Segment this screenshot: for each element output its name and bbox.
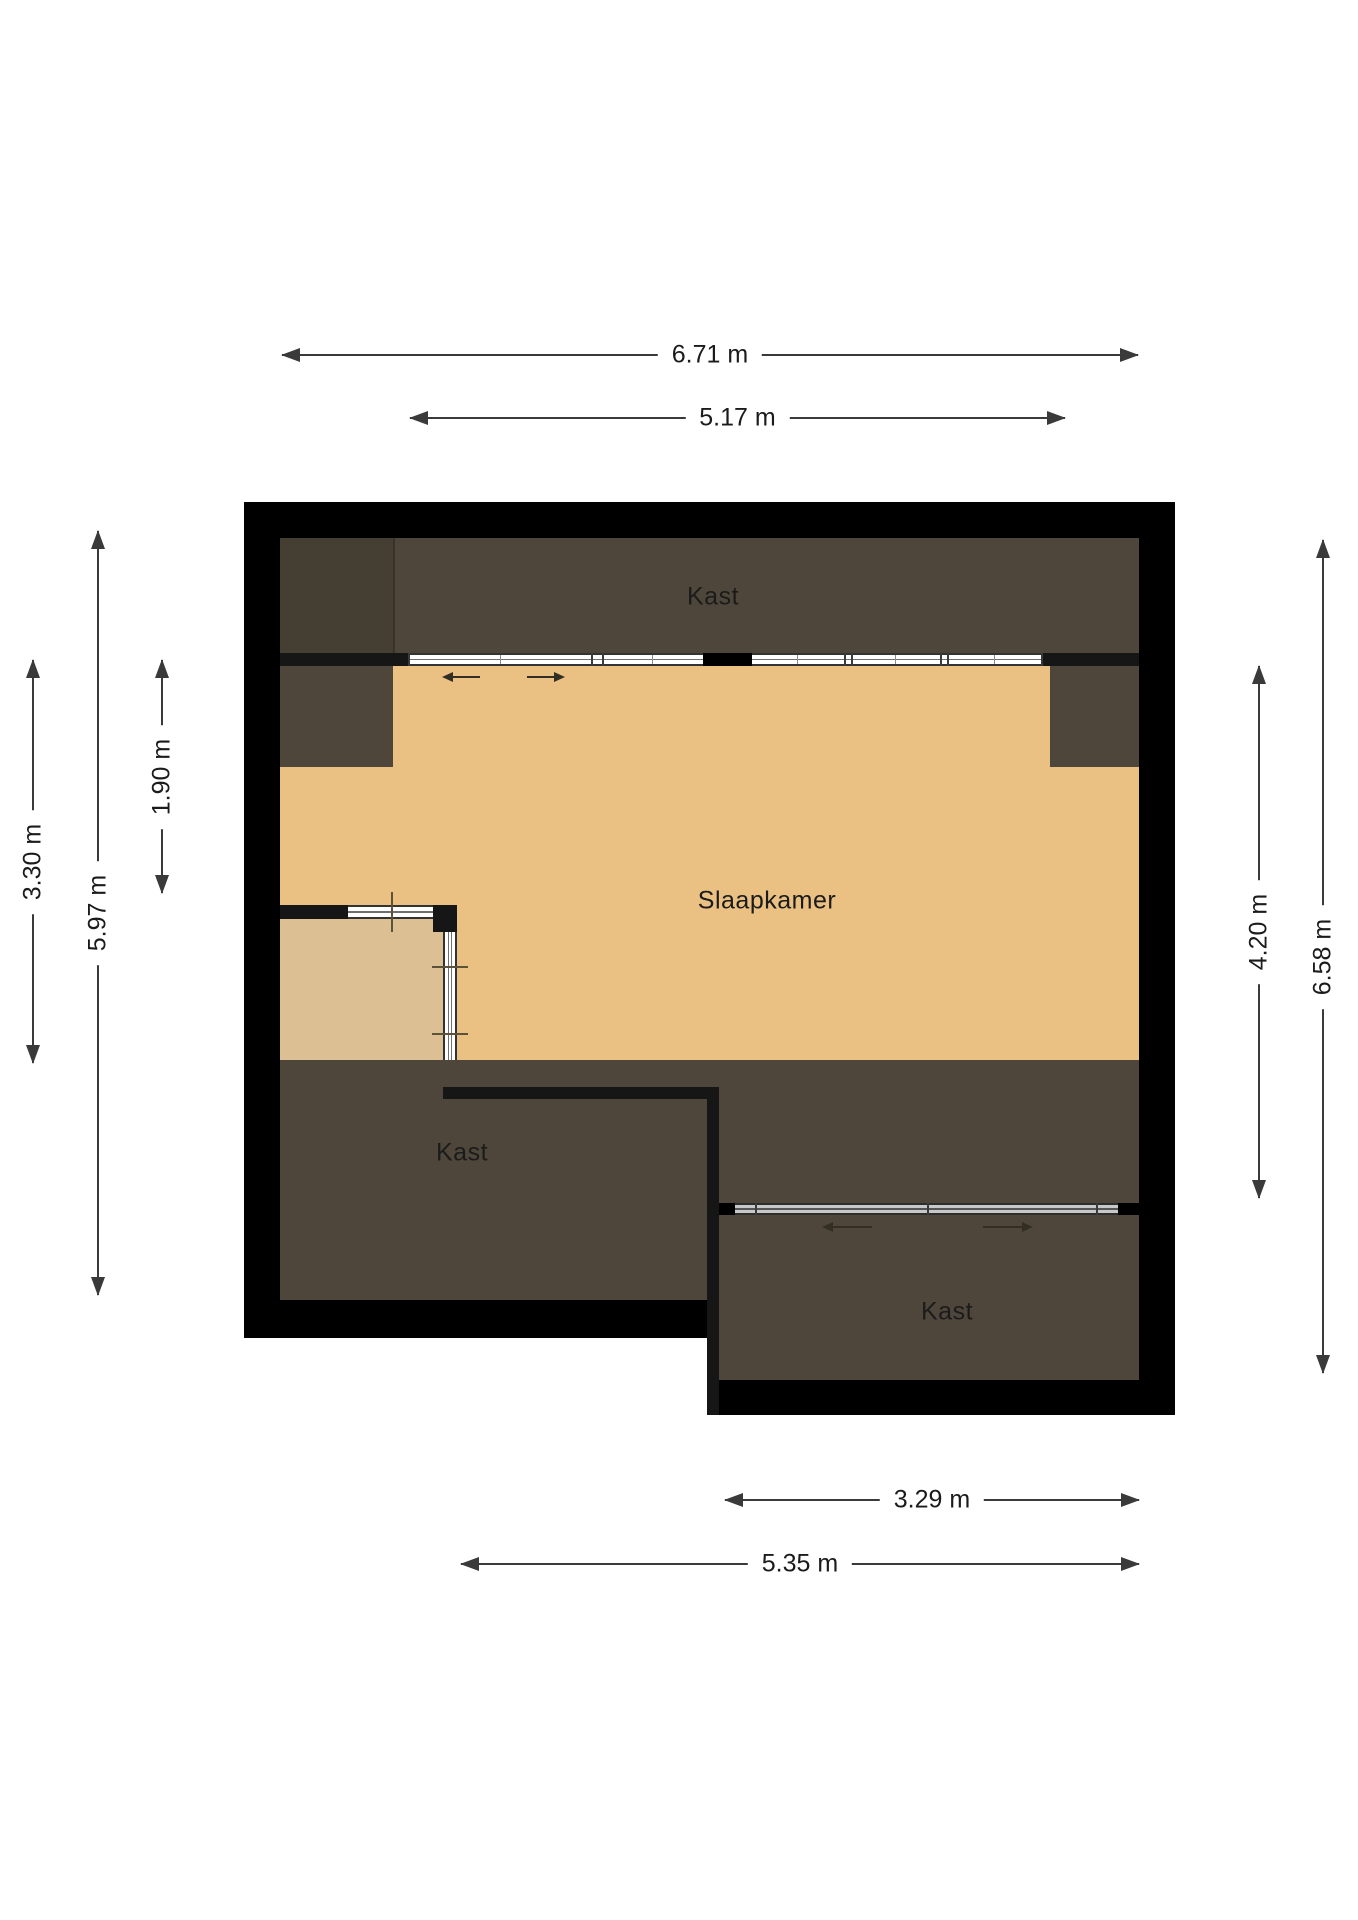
arrow-head-icon	[554, 672, 565, 682]
window-cross-tick	[432, 1033, 468, 1035]
dimension-value: 5.97 m	[84, 861, 113, 965]
window-tick	[940, 653, 942, 666]
dimension-left-room-depth: 3.30 m	[32, 660, 34, 1063]
dimension-arrow-icon	[91, 1277, 105, 1296]
window-tick	[602, 653, 604, 666]
dimension-value: 4.20 m	[1245, 880, 1274, 984]
sliding-door-arrow-left	[832, 1226, 872, 1228]
window-mid-tick	[500, 655, 501, 664]
window-tick	[755, 1203, 757, 1215]
window-bottom-right-stub	[1118, 1203, 1139, 1215]
window-tick	[591, 653, 593, 666]
dimension-value: 3.30 m	[19, 809, 48, 913]
window-tick	[927, 1203, 929, 1215]
window-tick	[844, 653, 846, 666]
window-tick	[1096, 1203, 1098, 1215]
window-cross-tick	[391, 892, 393, 932]
dimension-top-inner: 5.17 m	[410, 417, 1065, 419]
window-tick	[851, 653, 853, 666]
arrow-head-icon	[442, 672, 453, 682]
dimension-value: 5.17 m	[685, 404, 789, 433]
dimension-right-outer-height: 6.58 m	[1322, 540, 1324, 1373]
dimension-value: 6.58 m	[1309, 904, 1338, 1008]
window-small-room-right	[443, 932, 457, 1070]
dimension-arrow-icon	[26, 659, 40, 678]
window-mid-tick	[652, 655, 653, 664]
arrow-head-icon	[1022, 1222, 1033, 1232]
dimension-top-outer: 6.71 m	[282, 354, 1138, 356]
dimension-arrow-icon	[91, 530, 105, 549]
dimension-arrow-icon	[460, 1557, 479, 1571]
arrow-head-icon	[822, 1222, 833, 1232]
dimension-value: 6.71 m	[658, 341, 762, 370]
room-label-bottom-right-closet: Kast	[921, 1298, 973, 1327]
interior-wall-top-right	[1043, 653, 1139, 666]
dimension-arrow-icon	[1047, 411, 1066, 425]
room-label-bottom-left-closet: Kast	[436, 1139, 488, 1168]
interior-wall-horizontal	[443, 1087, 719, 1099]
dimension-arrow-icon	[1120, 348, 1139, 362]
room-label-bedroom: Slaapkamer	[698, 887, 836, 916]
closet-right-block	[1050, 666, 1139, 767]
floorplan-canvas: Kast Slaapkamer Kast Kast 6.71 m 5.17 m …	[0, 0, 1358, 1920]
small-room-wall-top	[280, 905, 348, 919]
dimension-arrow-icon	[26, 1045, 40, 1064]
dimension-arrow-icon	[1121, 1493, 1140, 1507]
closet-top-right-section	[393, 538, 1139, 653]
small-room-wall-corner	[433, 905, 457, 932]
interior-wall-vertical	[707, 1087, 719, 1415]
sliding-door-arrow-right	[527, 676, 555, 678]
room-label-top-closet: Kast	[687, 583, 739, 612]
dimension-left-upper-depth: 1.90 m	[161, 660, 163, 893]
dimension-arrow-icon	[1316, 539, 1330, 558]
window-mid-tick	[797, 655, 798, 664]
window-cross-tick	[432, 966, 468, 968]
interior-wall-top-middle-post	[703, 653, 752, 666]
dimension-value: 5.35 m	[748, 1550, 852, 1579]
dimension-right-room-depth: 4.20 m	[1258, 666, 1260, 1198]
dimension-left-outer-height: 5.97 m	[97, 531, 99, 1295]
bedroom-lower-shaded-floor	[719, 1060, 1139, 1203]
window-mid-tick	[895, 655, 896, 664]
sliding-door-arrow-left	[452, 676, 480, 678]
dimension-arrow-icon	[281, 348, 300, 362]
closet-top-left-section	[280, 538, 393, 653]
window-bottom-left-stub	[719, 1203, 735, 1215]
window-tick	[1041, 653, 1043, 666]
dimension-arrow-icon	[409, 411, 428, 425]
dimension-arrow-icon	[1121, 1557, 1140, 1571]
window-tick	[947, 653, 949, 666]
dimension-arrow-icon	[1252, 1180, 1266, 1199]
window-mid-tick	[994, 655, 995, 664]
dimension-value: 1.90 m	[148, 724, 177, 828]
dimension-arrow-icon	[724, 1493, 743, 1507]
small-room-floor	[280, 919, 443, 1060]
dimension-bottom-span: 5.35 m	[461, 1563, 1139, 1565]
dimension-arrow-icon	[1316, 1355, 1330, 1374]
dimension-arrow-icon	[155, 659, 169, 678]
dimension-value: 3.29 m	[880, 1486, 984, 1515]
dimension-bottom-closet: 3.29 m	[725, 1499, 1139, 1501]
closet-left-block	[280, 666, 393, 767]
sliding-door-arrow-right	[983, 1226, 1023, 1228]
interior-wall-top-left	[280, 653, 408, 666]
dimension-arrow-icon	[155, 875, 169, 894]
dimension-arrow-icon	[1252, 665, 1266, 684]
window-tick	[408, 653, 410, 666]
